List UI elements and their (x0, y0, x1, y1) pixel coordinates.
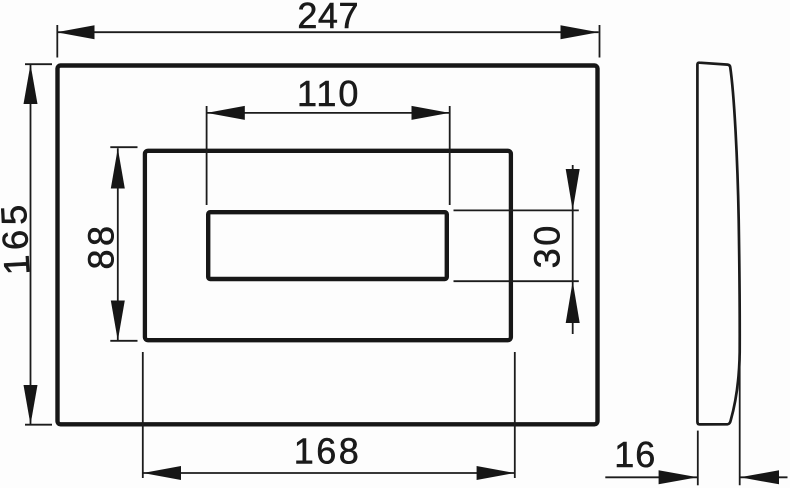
svg-text:110: 110 (297, 73, 360, 114)
svg-text:88: 88 (81, 222, 122, 269)
svg-text:30: 30 (527, 223, 568, 268)
svg-text:165: 165 (0, 199, 37, 276)
svg-text:247: 247 (297, 0, 359, 36)
svg-text:16: 16 (614, 434, 656, 475)
svg-text:168: 168 (294, 431, 362, 472)
